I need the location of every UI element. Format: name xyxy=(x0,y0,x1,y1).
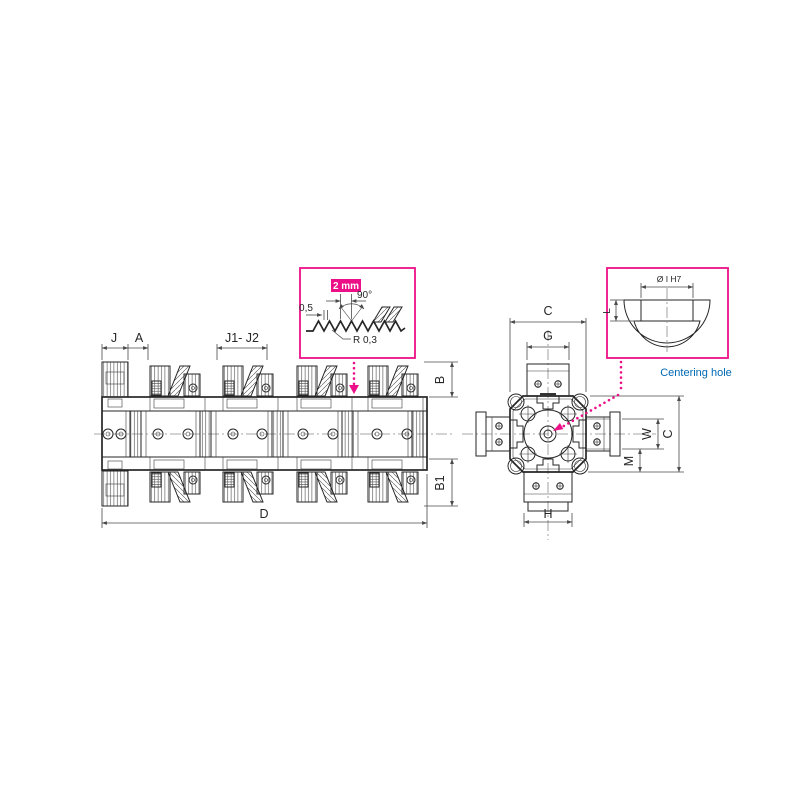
dim-label-c-top: C xyxy=(543,304,552,318)
radius-label: R 0,3 xyxy=(353,335,377,346)
land-label: 0,5 xyxy=(299,303,313,314)
drawing-svg: J A J1- J2 B B1 D xyxy=(0,0,800,800)
angle-label: 90° xyxy=(357,290,372,301)
technical-drawing-canvas: J A J1- J2 B B1 D xyxy=(0,0,800,800)
dim-label-a: A xyxy=(135,331,144,345)
dim-label-h: H xyxy=(543,507,552,521)
dim-label-m: M xyxy=(622,456,636,466)
dim-label-j: J xyxy=(111,331,117,345)
depth-label: L xyxy=(602,308,613,314)
dim-label-c-side: C xyxy=(661,429,675,438)
dim-label-w: W xyxy=(640,428,654,440)
dim-label-g: G xyxy=(543,329,553,343)
centering-callout: Ø I H7 L Centering hole xyxy=(553,268,732,431)
clamp-modules-bottom xyxy=(102,457,423,506)
dim-label-b1: B1 xyxy=(433,475,447,490)
serration-pointer xyxy=(349,363,359,394)
side-view: J A J1- J2 B B1 D xyxy=(94,331,458,528)
clamp-module xyxy=(150,366,205,411)
centering-hole-caption: Centering hole xyxy=(660,367,732,379)
dim-label-j1-j2: J1- J2 xyxy=(225,331,259,345)
side-view-top-dimensions: J A J1- J2 xyxy=(102,331,267,360)
diameter-label: Ø I H7 xyxy=(657,274,682,284)
end-block xyxy=(102,362,128,407)
pitch-label: 2 mm xyxy=(333,281,359,292)
dim-label-d: D xyxy=(259,507,268,521)
clamp-modules-top xyxy=(102,362,423,411)
dim-label-b: B xyxy=(433,376,447,384)
